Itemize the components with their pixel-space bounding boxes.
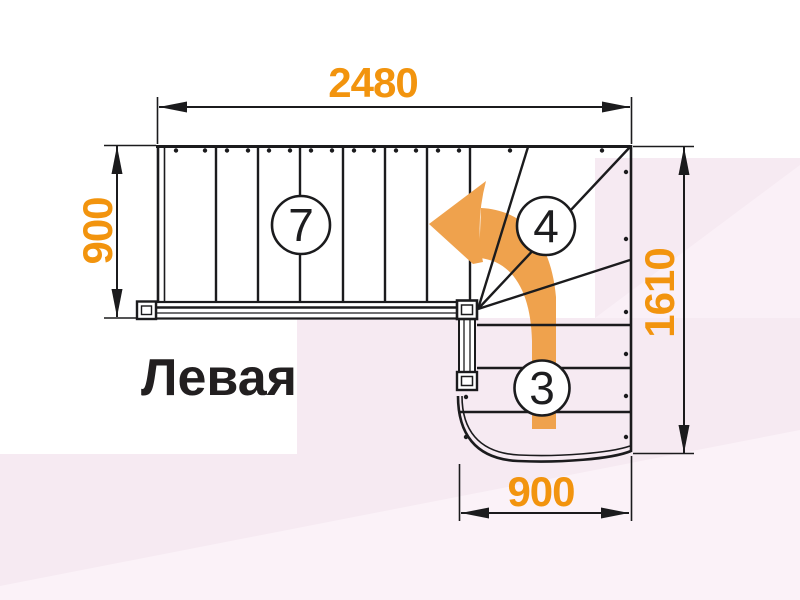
newel-post — [457, 301, 477, 391]
orientation-label: Левая — [141, 349, 297, 407]
stringer-board — [137, 302, 458, 320]
step-count-lower: 3 — [515, 361, 570, 416]
dimension-bottom-value: 900 — [507, 468, 574, 515]
dimension-left-value: 900 — [74, 197, 121, 264]
newel-post-shaft — [459, 319, 475, 372]
staircase-plan-svg: 7 4 3 2480 900 1610 — [0, 0, 800, 600]
dimension-top-value: 2480 — [328, 59, 417, 106]
dimension-right-value: 1610 — [636, 248, 683, 337]
newel-post-top-cap — [457, 301, 477, 320]
upper-flight-step-count: 7 — [288, 199, 314, 251]
step-count-upper: 7 — [272, 196, 330, 254]
winder-step-count: 4 — [533, 200, 559, 252]
newel-post-bottom-cap — [457, 372, 477, 390]
stringer-end-block — [137, 302, 156, 320]
staircase-drawing: 7 4 3 2480 900 1610 — [0, 0, 800, 600]
lower-flight-step-count: 3 — [529, 362, 555, 414]
step-count-winder: 4 — [517, 197, 575, 255]
